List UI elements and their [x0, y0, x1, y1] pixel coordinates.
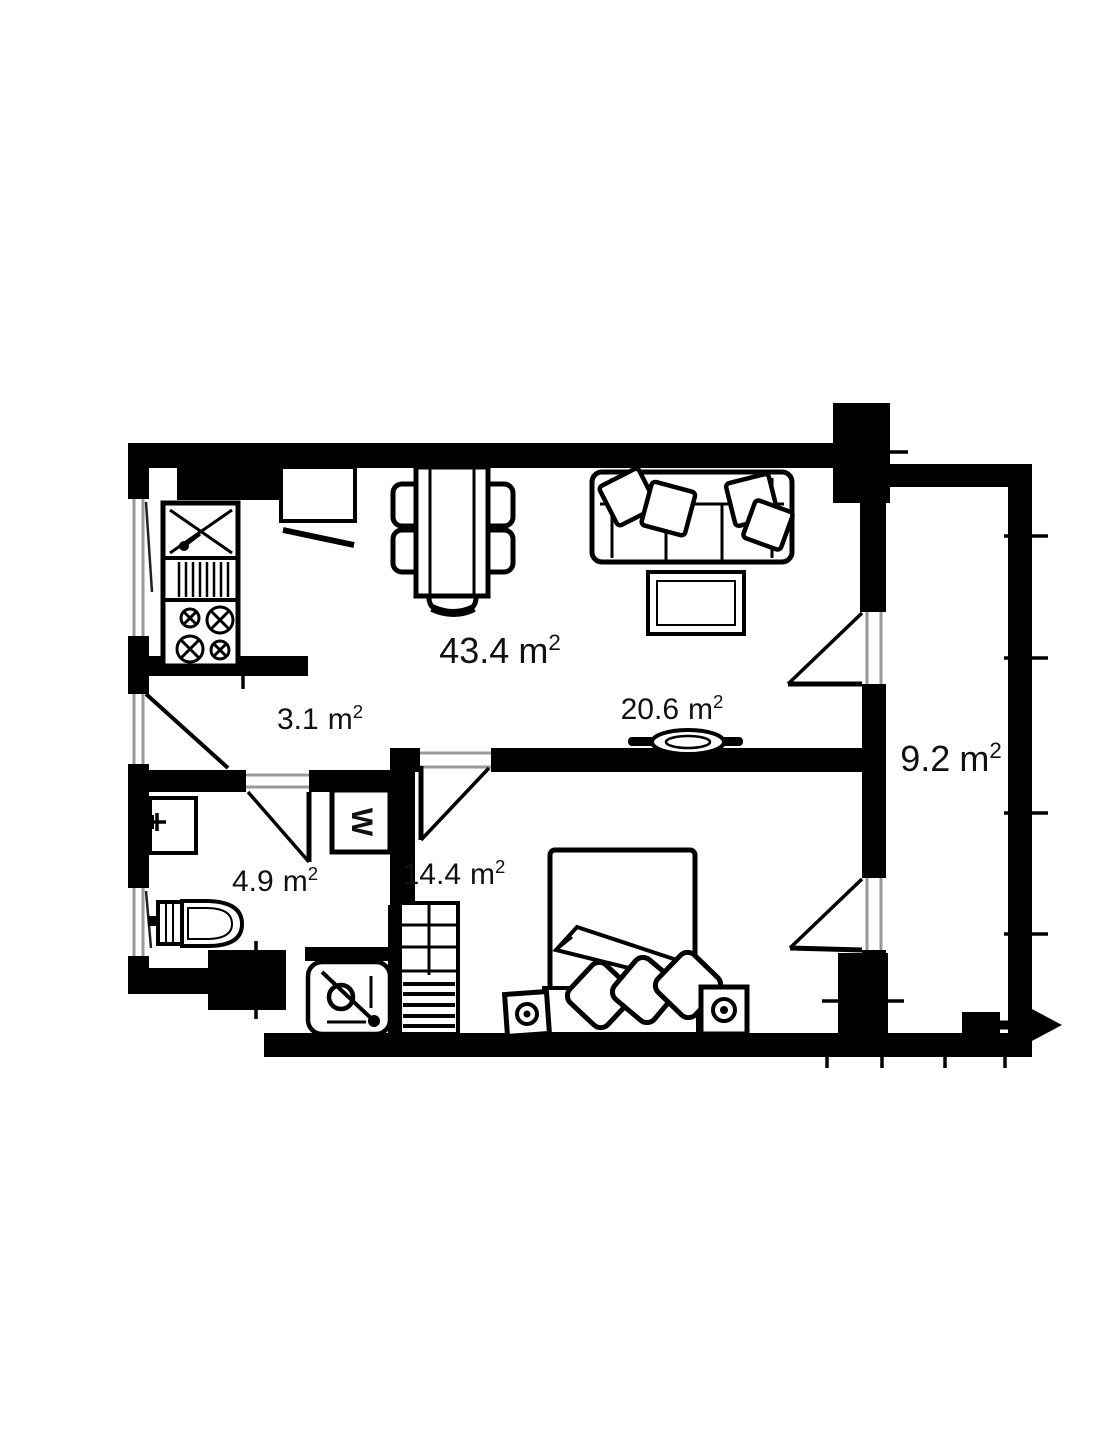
wardrobe [400, 903, 458, 1034]
floor-plan: 43.4m2 3.1m2 20.6m2 9.2m2 4.9m2 14.4m2 W [0, 0, 1113, 1440]
shower [308, 962, 390, 1034]
bathroom-door [246, 775, 309, 862]
hallway-area-label: 3.1m2 [250, 701, 390, 737]
dining-table [416, 467, 488, 596]
bathroom-area-label: 4.9m2 [205, 863, 345, 899]
window-kitchen [134, 499, 152, 636]
bedroom-door [420, 753, 491, 840]
wall-cabinet [281, 467, 355, 545]
living-zone-area-value: 20.6 [621, 693, 679, 726]
radiator-icon [628, 730, 743, 754]
washing-machine-label: W [337, 798, 385, 846]
bathroom-sink [146, 798, 196, 853]
hallway-area-value: 3.1 [277, 703, 319, 736]
balcony-area-label: 9.2m2 [871, 738, 1031, 780]
plan-symbols [0, 0, 1113, 1440]
living-room-area-value: 43.4 [439, 630, 509, 671]
entry-door [134, 694, 228, 768]
balcony-area-value: 9.2 [900, 738, 950, 779]
living-room-area-label: 43.4m2 [420, 630, 580, 672]
living-zone-area-label: 20.6m2 [602, 691, 742, 727]
nightstand-left [505, 992, 550, 1037]
bathroom-area-value: 4.9 [232, 865, 274, 898]
nightstand-right [701, 987, 747, 1034]
living-balcony-door [788, 612, 881, 684]
bedroom-area-value: 14.4 [403, 858, 461, 891]
bedroom-balcony-door [790, 878, 881, 950]
coffee-table [648, 572, 744, 634]
toilet [148, 901, 242, 946]
bedroom-area-label: 14.4m2 [384, 856, 524, 892]
